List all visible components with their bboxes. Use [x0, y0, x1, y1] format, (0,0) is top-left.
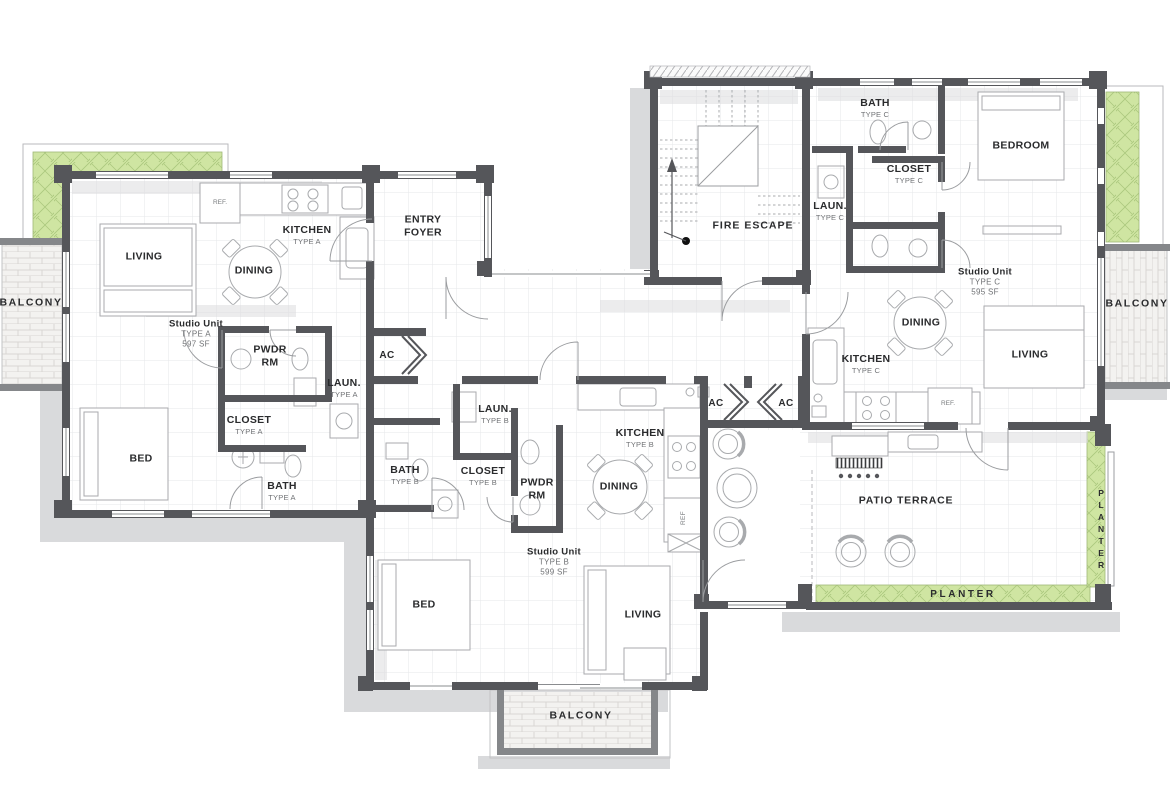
- label-dining-c: DINING: [902, 317, 941, 330]
- label-pwdr-rm-a: PWDRRM: [253, 343, 286, 368]
- label-kitchen-a: KITCHENTYPE A: [283, 224, 332, 246]
- label-dining-b: DINING: [600, 481, 639, 494]
- label-closet-b: CLOSETTYPE B: [461, 465, 505, 487]
- label-kitchen-c: KITCHENTYPE C: [842, 353, 891, 375]
- label-bed-a: BED: [129, 453, 152, 466]
- label-laun-a: LAUN.TYPE A: [327, 377, 361, 399]
- label-dining-a: DINING: [235, 265, 274, 278]
- label-bath-b: BATHTYPE B: [390, 464, 420, 486]
- planter-top-right: [1103, 86, 1163, 248]
- label-planter-right: PLANTER: [1096, 488, 1106, 572]
- label-studio-unit-c: Studio UnitTYPE C595 SF: [958, 267, 1012, 298]
- floor-plan-drawing: [0, 0, 1170, 785]
- label-living-b: LIVING: [625, 609, 662, 622]
- label-balcony-right: BALCONY: [1105, 298, 1168, 311]
- label-balcony-bottom: BALCONY: [549, 710, 612, 723]
- label-bed-b: BED: [412, 599, 435, 612]
- label-laun-c: LAUN.TYPE C: [813, 200, 847, 222]
- label-living-a: LIVING: [126, 251, 163, 264]
- label-studio-unit-a: Studio UnitTYPE A597 SF: [169, 319, 223, 350]
- label-pwdr-rm-b: PWDRRM: [520, 476, 553, 501]
- label-entry-foyer: ENTRYFOYER: [404, 213, 442, 238]
- label-ac-patio-1: AC: [708, 398, 723, 410]
- label-kitchen-b: KITCHENTYPE B: [616, 427, 665, 449]
- label-studio-unit-b: Studio UnitTYPE B599 SF: [527, 547, 581, 578]
- label-bedroom-c: BEDROOM: [993, 140, 1050, 153]
- label-closet-a: CLOSETTYPE A: [227, 414, 271, 436]
- label-bath-c: BATHTYPE C: [860, 97, 890, 119]
- label-ac-patio-2: AC: [778, 398, 793, 410]
- label-ref-a: REF.: [213, 199, 227, 207]
- balcony-bottom: [490, 690, 670, 758]
- label-ref-b: REF: [680, 511, 688, 525]
- label-laun-b: LAUN.TYPE B: [478, 403, 512, 425]
- label-ref-c: REF.: [941, 400, 955, 408]
- label-ac-entry: AC: [379, 350, 394, 362]
- label-balcony-left: BALCONY: [0, 297, 63, 310]
- balcony-right: [1103, 244, 1170, 389]
- label-planter-bottom: PLANTER: [930, 589, 995, 601]
- label-bath-a: BATHTYPE A: [267, 480, 297, 502]
- label-closet-c: CLOSETTYPE C: [887, 163, 931, 185]
- balcony-left: [0, 238, 62, 391]
- label-living-c: LIVING: [1012, 349, 1049, 362]
- label-patio-terrace: PATIO TERRACE: [859, 495, 954, 508]
- floor-plan: BALCONY LIVING DINING KITCHENTYPE A REF.…: [0, 0, 1170, 785]
- label-fire-escape: FIRE ESCAPE: [712, 220, 793, 233]
